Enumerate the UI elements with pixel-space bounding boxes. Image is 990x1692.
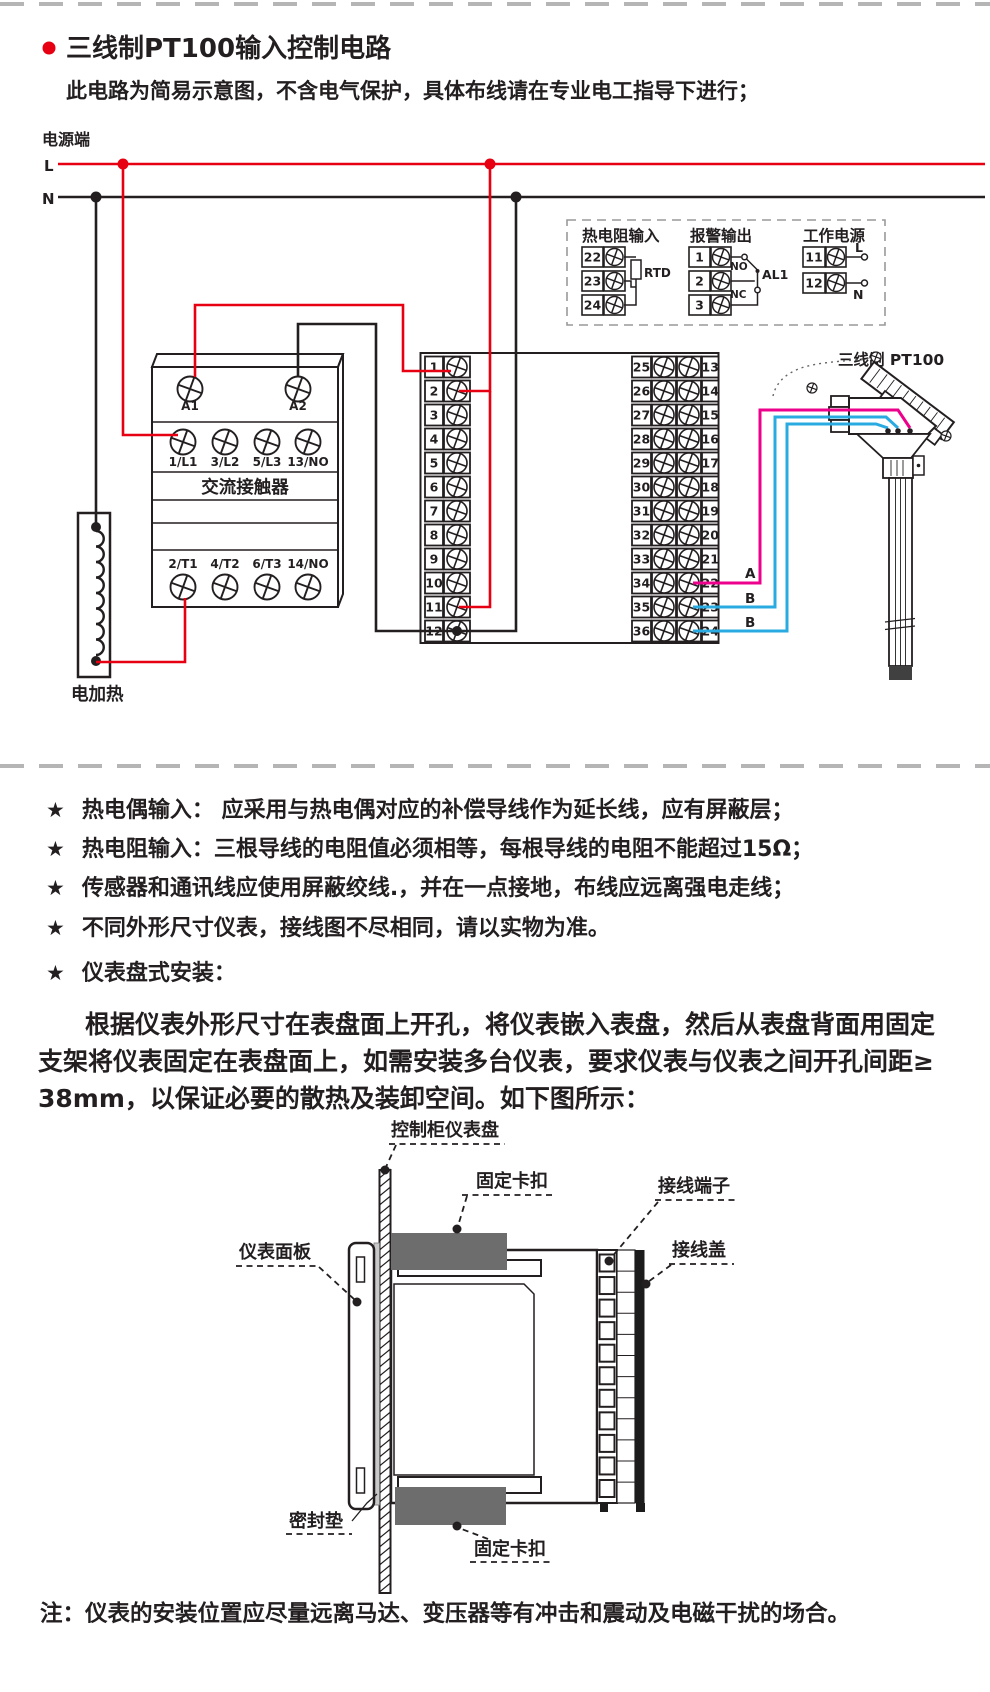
star-icon: ★ (46, 916, 65, 941)
screw-terminal-icon (679, 549, 699, 569)
terminal-screw-cell (600, 1457, 615, 1474)
screw-terminal-icon (255, 575, 280, 600)
terminal-number: 5 (430, 456, 439, 471)
screw-terminal-icon (213, 575, 238, 600)
panel-callout-label: 控制柜仪表盘 (391, 1119, 499, 1141)
terminal-number: 14 (702, 384, 720, 399)
note-text: 不同外形尺寸仪表，接线图不尽相同，请以实物为准。 (82, 916, 610, 942)
terminal-number: 26 (633, 384, 651, 399)
screw-terminal-icon (255, 430, 280, 455)
terminal-number: 36 (633, 624, 651, 639)
screw-terminal-icon (679, 501, 699, 521)
screw-terminal-icon (296, 575, 321, 600)
star-icon: ★ (46, 837, 65, 862)
screw-terminal-icon (171, 575, 196, 600)
terminal-number: 3 (695, 298, 704, 313)
terminal-number: 6 (430, 480, 439, 495)
bottom-note: 注：仪表的安装位置应尽量远离马达、变压器等有冲击和震动及电磁干扰的场合。 (40, 1596, 850, 1628)
screw-terminal-icon (286, 377, 311, 402)
terminal-number: 24 (584, 298, 602, 313)
paragraph-line: 根据仪表外形尺寸在表盘面上开孔，将仪表嵌入表盘，然后从表盘背面用固定 (38, 1006, 935, 1043)
screw-terminal-icon (679, 429, 699, 449)
terminal-number: 1 (695, 250, 704, 265)
terminal-number: 19 (702, 504, 719, 519)
contactor-a1-label: A1 (181, 399, 199, 413)
rtd-label: RTD (644, 266, 671, 280)
screw-terminal-icon (606, 249, 623, 266)
terminal-legend: 热电阻输入 报警输出 工作电源 2223241231112 RTD (567, 220, 885, 325)
screw-terminal-icon (606, 297, 623, 314)
supply-n-label: N (853, 287, 863, 302)
screw-terminal-icon (679, 405, 699, 425)
terminals-callout-label: 接线端子 (658, 1175, 730, 1197)
supply-symbol: L N (846, 240, 868, 302)
power-terminal-label: 电源端 (42, 130, 90, 149)
terminal-screw-cell (600, 1480, 615, 1497)
screw-terminal-icon (713, 297, 730, 314)
mounting-clamp-top (391, 1233, 507, 1270)
terminal-number: 17 (702, 456, 719, 471)
screw-terminal-icon (941, 431, 951, 441)
terminal-number: 2 (430, 384, 439, 399)
cover-callout-label: 接线盖 (672, 1239, 726, 1261)
screw-terminal-icon (447, 405, 467, 425)
screw-terminal-icon (654, 357, 674, 377)
screw-terminal-icon (828, 249, 845, 266)
no-label: NO (730, 261, 748, 273)
contactor-4t2-label: 4/T2 (210, 557, 239, 571)
terminal-number: 3 (430, 408, 439, 423)
contactor-14no-label: 14/NO (287, 557, 328, 571)
foot (600, 1503, 608, 1512)
terminal-number: 16 (702, 432, 720, 447)
wire-b1-label: B (745, 591, 755, 607)
paragraph-line: 支架将仪表固定在表盘面上，如需安装多台仪表，要求仪表与仪表之间开孔间距≥ (38, 1043, 935, 1080)
screw-terminal-icon (447, 573, 467, 593)
sensor-collar (883, 458, 913, 478)
terminal-number: 11 (425, 600, 442, 615)
screw-terminal-icon (679, 525, 699, 545)
screw-terminal-icon (447, 501, 467, 521)
star-icon: ★ (46, 798, 65, 823)
terminal-screw-cell (600, 1300, 615, 1317)
sensor-neck (857, 434, 930, 458)
screw-terminal-icon (654, 381, 674, 401)
terminal-number: 21 (702, 552, 719, 567)
terminal-number: 4 (430, 432, 439, 447)
terminal-number: 2 (695, 274, 704, 289)
screw-terminal-icon (654, 621, 674, 641)
wiring-diagram: 三线制PT100输入控制电路 此电路为简易示意图，不含电气保护，具体布线请在专业… (0, 0, 990, 710)
legend-rtd-title: 热电阻输入 (582, 226, 660, 245)
foot (636, 1503, 645, 1512)
terminal-screw-cell (600, 1367, 615, 1384)
terminal-number: 29 (633, 456, 650, 471)
faceplate-callout-label: 仪表面板 (238, 1241, 312, 1263)
screw-terminal-icon (679, 381, 699, 401)
faceplate-slot (357, 1468, 365, 1493)
screw-terminal-icon (654, 477, 674, 497)
terminal-number: 31 (633, 504, 650, 519)
screw-terminal-icon (679, 477, 699, 497)
heater: 电加热 (71, 513, 124, 705)
note-bullet-3: ★ 传感器和通讯线应使用屏蔽绞线.，并在一点接地，布线应远离强电走线； (46, 876, 794, 902)
screw-terminal-icon (807, 383, 817, 393)
terminal-screw-cell (600, 1345, 615, 1362)
clip-bottom-callout-label: 固定卡扣 (474, 1538, 546, 1560)
screw-terminal-icon (654, 525, 674, 545)
note-text: 热电阻输入：三根导线的电阻值必须相等，每根导线的电阻不能超过15Ω； (82, 837, 813, 863)
note-text: 热电偶输入： 应采用与热电偶对应的补偿导线作为延长线，应有屏蔽层； (82, 798, 794, 824)
alarm-relay-symbol: NO NC AL1 (730, 254, 788, 305)
screw-terminal-icon (171, 430, 196, 455)
note-text: 仪表盘式安装： (82, 961, 236, 987)
terminal-number: 9 (430, 552, 439, 567)
screw-terminal-icon (447, 477, 467, 497)
contactor-6t3-label: 6/T3 (252, 557, 281, 571)
contactor-1l1-label: 1/L1 (169, 455, 198, 469)
mounting-diagram: 控制柜仪表盘 固定卡扣 接线端子 接线盖 仪表面板 密封垫 固定卡扣 (0, 1100, 990, 1600)
screw-terminal-icon (606, 273, 623, 290)
terminal-screw-cell (600, 1322, 615, 1339)
page-subtitle: 此电路为简易示意图，不含电气保护，具体布线请在专业电工指导下进行； (66, 79, 759, 103)
terminal-number: 22 (584, 250, 601, 265)
terminal-number: 18 (702, 480, 719, 495)
screw-terminal-icon (713, 249, 730, 266)
contactor-a2-label: A2 (289, 399, 307, 413)
screw-terminal-icon (654, 453, 674, 473)
clip-top-callout-label: 固定卡扣 (476, 1170, 548, 1192)
screw-terminal-icon (654, 405, 674, 425)
screw-terminal-icon (654, 573, 674, 593)
screw-terminal-icon (654, 501, 674, 521)
legend-alarm-title: 报警输出 (690, 226, 752, 245)
contactor-5l3-label: 5/L3 (253, 455, 282, 469)
heater-body (78, 513, 110, 677)
screw-terminal-icon (213, 430, 238, 455)
mounting-clamp-bottom (395, 1487, 506, 1525)
rtd-resistor-icon (631, 260, 641, 279)
terminal-number: 25 (633, 360, 650, 375)
sensor-union-fitting (829, 396, 849, 432)
note-bullet-5: ★ 仪表盘式安装： (46, 961, 236, 987)
note-bullet-2: ★ 热电阻输入：三根导线的电阻值必须相等，每根导线的电阻不能超过15Ω； (46, 837, 813, 863)
line-n-label: N (42, 190, 55, 208)
section-dashed-divider (0, 764, 990, 768)
screw-terminal-icon (713, 273, 730, 290)
terminal-number: 11 (805, 250, 822, 265)
screw-terminal-icon (679, 357, 699, 377)
al1-label: AL1 (762, 267, 788, 282)
page-title: 三线制PT100输入控制电路 (66, 33, 392, 64)
wire-b2-label: B (745, 615, 755, 631)
screw-terminal-icon (654, 549, 674, 569)
screw-terminal-icon (447, 525, 467, 545)
screw-terminal-icon (447, 429, 467, 449)
page: 三线制PT100输入控制电路 此电路为简易示意图，不含电气保护，具体布线请在专业… (0, 0, 990, 1692)
screw-terminal-icon (654, 597, 674, 617)
wire-a-label: A (745, 566, 756, 582)
screw-terminal-icon (871, 352, 881, 362)
screw-terminal-icon (654, 429, 674, 449)
terminal-number: 8 (430, 528, 439, 543)
terminal-screw-cell (600, 1412, 615, 1429)
terminal-number: 10 (425, 576, 443, 591)
nc-label: NC (730, 289, 747, 301)
terminal-block-screws (600, 1255, 615, 1498)
note-text: 传感器和通讯线应使用屏蔽绞线.，并在一点接地，布线应远离强电走线； (82, 876, 794, 902)
terminal-number: 20 (702, 528, 720, 543)
line-l-label: L (44, 157, 54, 175)
screw-terminal-icon (447, 549, 467, 569)
terminal-number: 33 (633, 552, 650, 567)
star-icon: ★ (46, 961, 65, 986)
terminal-number: 13 (702, 360, 719, 375)
contactor-name: 交流接触器 (201, 477, 289, 498)
terminal-number: 35 (633, 600, 650, 615)
wire-sensor-b1 (693, 417, 898, 607)
contactor-2t1-label: 2/T1 (168, 557, 197, 571)
screw-terminal-icon (447, 453, 467, 473)
note-bullet-1: ★ 热电偶输入： 应采用与热电偶对应的补偿导线作为延长线，应有屏蔽层； (46, 798, 794, 824)
sensor-probe-tip (889, 666, 912, 680)
pt100-sensor: 三线制 PT100 (773, 350, 954, 680)
terminal-number: 28 (633, 432, 650, 447)
faceplate-slot (357, 1257, 365, 1282)
terminal-number: 27 (633, 408, 650, 423)
terminal-screw-cell (600, 1390, 615, 1407)
supply-l-label: L (855, 240, 863, 255)
terminal-number: 7 (430, 504, 439, 519)
note-bullet-4: ★ 不同外形尺寸仪表，接线图不尽相同，请以实物为准。 (46, 916, 610, 942)
terminal-number: 34 (633, 576, 651, 591)
terminal-number: 15 (702, 408, 719, 423)
screw-terminal-icon (296, 430, 321, 455)
legend-terminal-blocks: 2223241231112 (582, 247, 846, 315)
screw-terminal-icon (828, 275, 845, 292)
screw-terminal-icon (679, 453, 699, 473)
screw-terminal-icon (178, 377, 203, 402)
gasket-callout-label: 密封垫 (289, 1510, 343, 1532)
no-contact-icon (742, 254, 747, 259)
terminal-number: 23 (584, 274, 601, 289)
terminal-screw-cell (600, 1277, 615, 1294)
terminal-number: 12 (805, 276, 822, 291)
heater-label: 电加热 (71, 684, 124, 705)
rtd-symbol: RTD (624, 257, 671, 305)
terminal-number: 30 (633, 480, 651, 495)
title-bullet-icon (43, 42, 56, 55)
body-recess (394, 1284, 534, 1475)
terminal-screw-cell (600, 1435, 615, 1452)
contactor-13no-label: 13/NO (287, 455, 328, 469)
terminal-cover-bar (635, 1250, 645, 1503)
terminal-number: 32 (633, 528, 650, 543)
star-icon: ★ (46, 876, 65, 901)
sensor-label: 三线制 PT100 (838, 350, 944, 369)
contactor-3l2-label: 3/L2 (211, 455, 240, 469)
nc-contact-icon (755, 287, 760, 292)
contactor: A1 A2 1/L1 3/L2 5/L3 13/NO 交流接触器 2/T1 4/… (152, 354, 343, 607)
screw-terminal-icon (447, 357, 467, 377)
wire-sensor-b2 (693, 424, 888, 631)
